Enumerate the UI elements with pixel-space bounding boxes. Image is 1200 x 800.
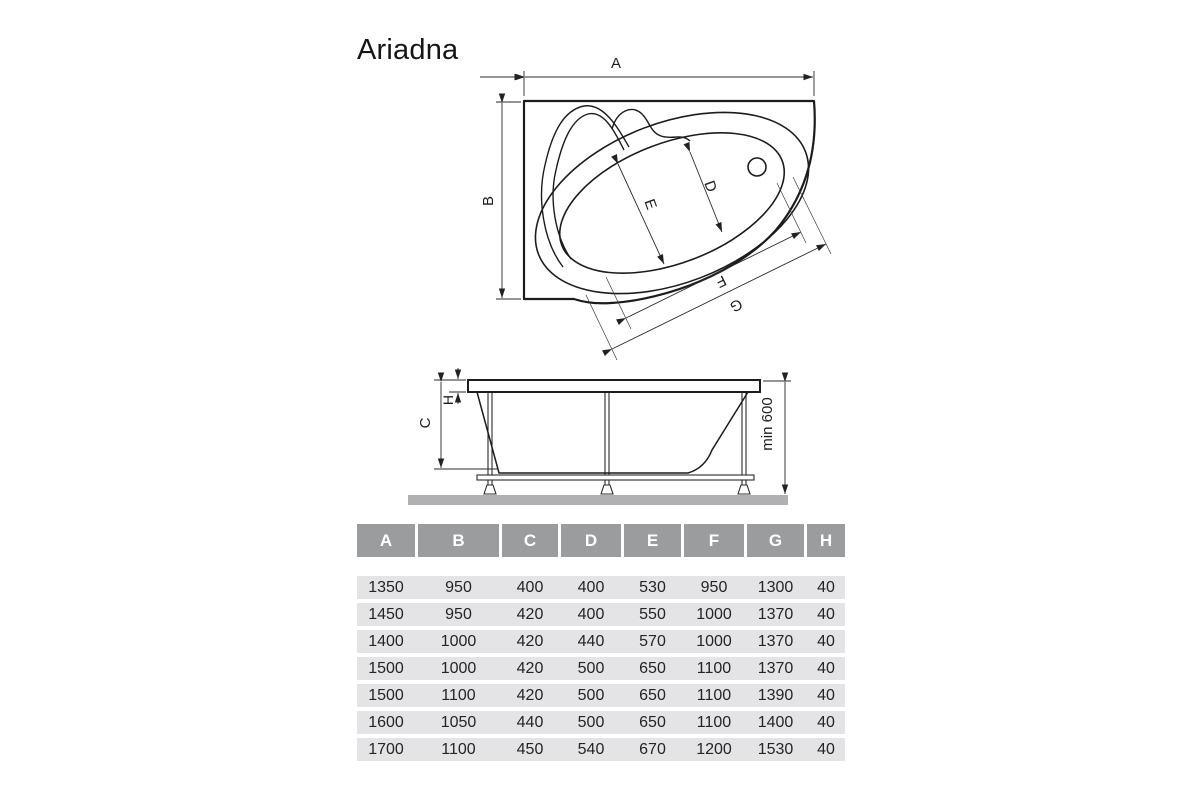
dim-label-min-height: min 600 [759,397,776,450]
table-cell-c: 420 [502,684,558,707]
table-cell-h: 40 [807,576,845,599]
table-header-row: A B C D E F G H [357,524,845,557]
table-cell-e: 570 [624,630,681,653]
table-cell-d: 440 [561,630,621,653]
table-cell-g: 1370 [747,657,804,680]
table-row: 1500 1000 420 500 650 1100 1370 40 [357,657,845,680]
table-cell-f: 1100 [684,657,744,680]
table-cell-b: 1000 [418,657,499,680]
dim-g-line [612,244,826,349]
table-row: 1350 950 400 400 530 950 1300 40 [357,576,845,599]
table-cell-d: 500 [561,711,621,734]
table-cell-c: 420 [502,603,558,626]
table-cell-a: 1700 [357,738,415,761]
table-header-cell: G [747,524,804,557]
table-cell-a: 1450 [357,603,415,626]
page-title: Ariadna [357,34,458,67]
drain-circle [748,158,766,176]
table-cell-f: 1100 [684,684,744,707]
table-row: 1600 1050 440 500 650 1100 1400 40 [357,711,845,734]
table-row: 1500 1100 420 500 650 1100 1390 40 [357,684,845,707]
table-cell-h: 40 [807,711,845,734]
table-cell-c: 420 [502,630,558,653]
table-cell-e: 530 [624,576,681,599]
dimensions-table: A B C D E F G H 1350 950 400 400 530 950… [357,524,845,765]
table-row: 1700 1100 450 540 670 1200 1530 40 [357,738,845,761]
table-cell-g: 1370 [747,603,804,626]
dim-label-h: H [440,395,456,405]
table-cell-g: 1400 [747,711,804,734]
table-header-cell: D [561,524,621,557]
table-header-cell: C [502,524,558,557]
headrest-contours [542,106,690,267]
table-body: 1350 950 400 400 530 950 1300 40 1450 95… [357,576,845,761]
table-cell-b: 1050 [418,711,499,734]
table-cell-a: 1350 [357,576,415,599]
table-cell-g: 1390 [747,684,804,707]
table-cell-d: 500 [561,657,621,680]
bowl-ellipse [540,105,803,302]
dim-b [496,102,521,299]
table-cell-c: 450 [502,738,558,761]
table-cell-f: 1000 [684,603,744,626]
table-header-cell: B [418,524,499,557]
table-cell-e: 650 [624,711,681,734]
table-header-cell: H [807,524,845,557]
tub-profile [477,392,748,473]
table-cell-b: 1000 [418,630,499,653]
table-header-cell: F [684,524,744,557]
table-cell-b: 950 [418,576,499,599]
table-cell-g: 1530 [747,738,804,761]
table-cell-d: 500 [561,684,621,707]
table-cell-f: 1200 [684,738,744,761]
table-cell-d: 400 [561,576,621,599]
table-cell-h: 40 [807,630,845,653]
dim-label-c: C [417,417,434,428]
dim-label-f: F [713,271,729,290]
dim-label-e: E [641,197,660,212]
table-cell-d: 540 [561,738,621,761]
table-cell-g: 1300 [747,576,804,599]
rim-bar [468,380,760,392]
dim-label-a: A [611,55,621,72]
table-cell-b: 950 [418,603,499,626]
bathtub-side-view-drawing: H C min 600 [405,358,800,513]
table-cell-f: 950 [684,576,744,599]
table-cell-g: 1370 [747,630,804,653]
ground-line [408,495,788,505]
table-cell-h: 40 [807,603,845,626]
table-cell-e: 550 [624,603,681,626]
table-cell-a: 1500 [357,657,415,680]
table-cell-c: 420 [502,657,558,680]
table-cell-f: 1100 [684,711,744,734]
table-cell-c: 440 [502,711,558,734]
tub-outline [524,101,815,303]
dim-label-d: D [700,178,720,194]
table-cell-f: 1000 [684,630,744,653]
table-header-cell: E [624,524,681,557]
table-cell-e: 670 [624,738,681,761]
table-cell-h: 40 [807,738,845,761]
table-cell-d: 400 [561,603,621,626]
table-cell-a: 1600 [357,711,415,734]
table-cell-h: 40 [807,684,845,707]
table-row: 1400 1000 420 440 570 1000 1370 40 [357,630,845,653]
table-cell-c: 400 [502,576,558,599]
dim-e-line [618,164,664,264]
bathtub-top-view-drawing: A B E D F G [480,55,845,367]
table-header-cell: A [357,524,415,557]
table-cell-e: 650 [624,657,681,680]
table-cell-a: 1400 [357,630,415,653]
dim-label-b: B [480,196,497,206]
table-cell-b: 1100 [418,738,499,761]
dim-f-line [626,232,801,318]
frame-legs [488,392,746,486]
table-row: 1450 950 420 400 550 1000 1370 40 [357,603,845,626]
feet [484,485,750,494]
frame-rail [477,475,754,480]
dim-label-g: G [727,295,745,315]
dim-a [480,71,814,96]
table-cell-h: 40 [807,657,845,680]
table-cell-a: 1500 [357,684,415,707]
table-cell-e: 650 [624,684,681,707]
table-cell-b: 1100 [418,684,499,707]
